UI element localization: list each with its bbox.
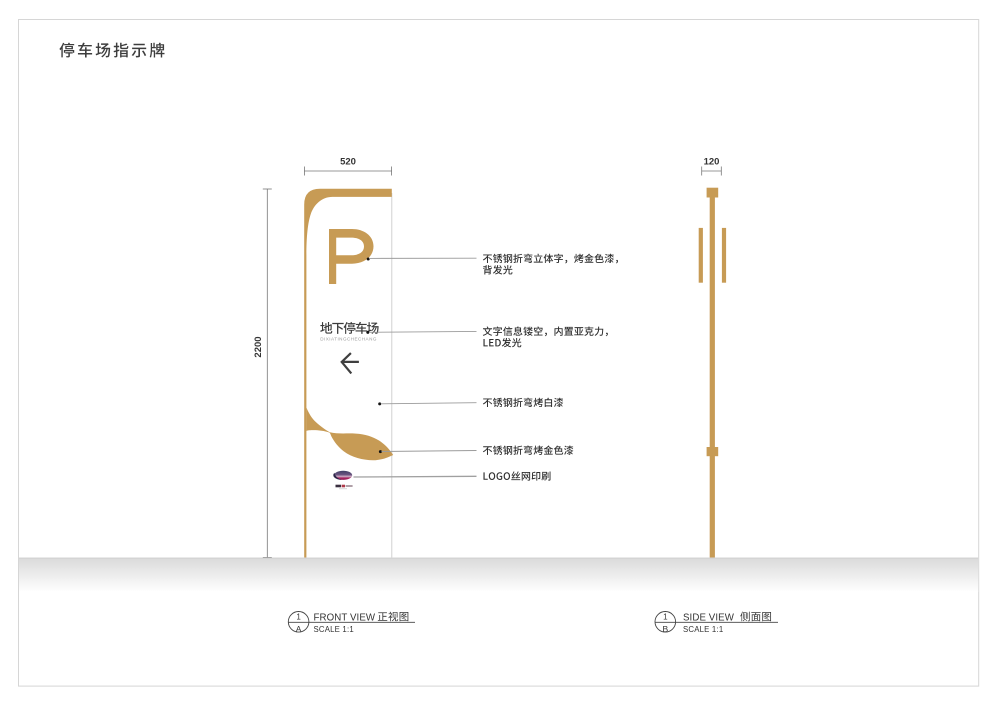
svg-text:DIXIATINGCHECHANG: DIXIATINGCHECHANG	[320, 336, 377, 341]
svg-text:2200: 2200	[253, 336, 264, 357]
svg-text:A: A	[296, 624, 302, 634]
svg-text:SIDE VIEW: SIDE VIEW	[683, 612, 735, 623]
svg-text:120: 120	[704, 157, 720, 168]
svg-text:SCALE 1:1: SCALE 1:1	[683, 625, 723, 634]
svg-text:1: 1	[296, 613, 301, 622]
svg-text:B: B	[662, 624, 668, 634]
svg-text:1: 1	[663, 613, 668, 622]
svg-text:520: 520	[340, 157, 356, 168]
svg-text:FRONT VIEW: FRONT VIEW	[314, 612, 376, 623]
svg-text:SCALE 1:1: SCALE 1:1	[314, 625, 354, 634]
